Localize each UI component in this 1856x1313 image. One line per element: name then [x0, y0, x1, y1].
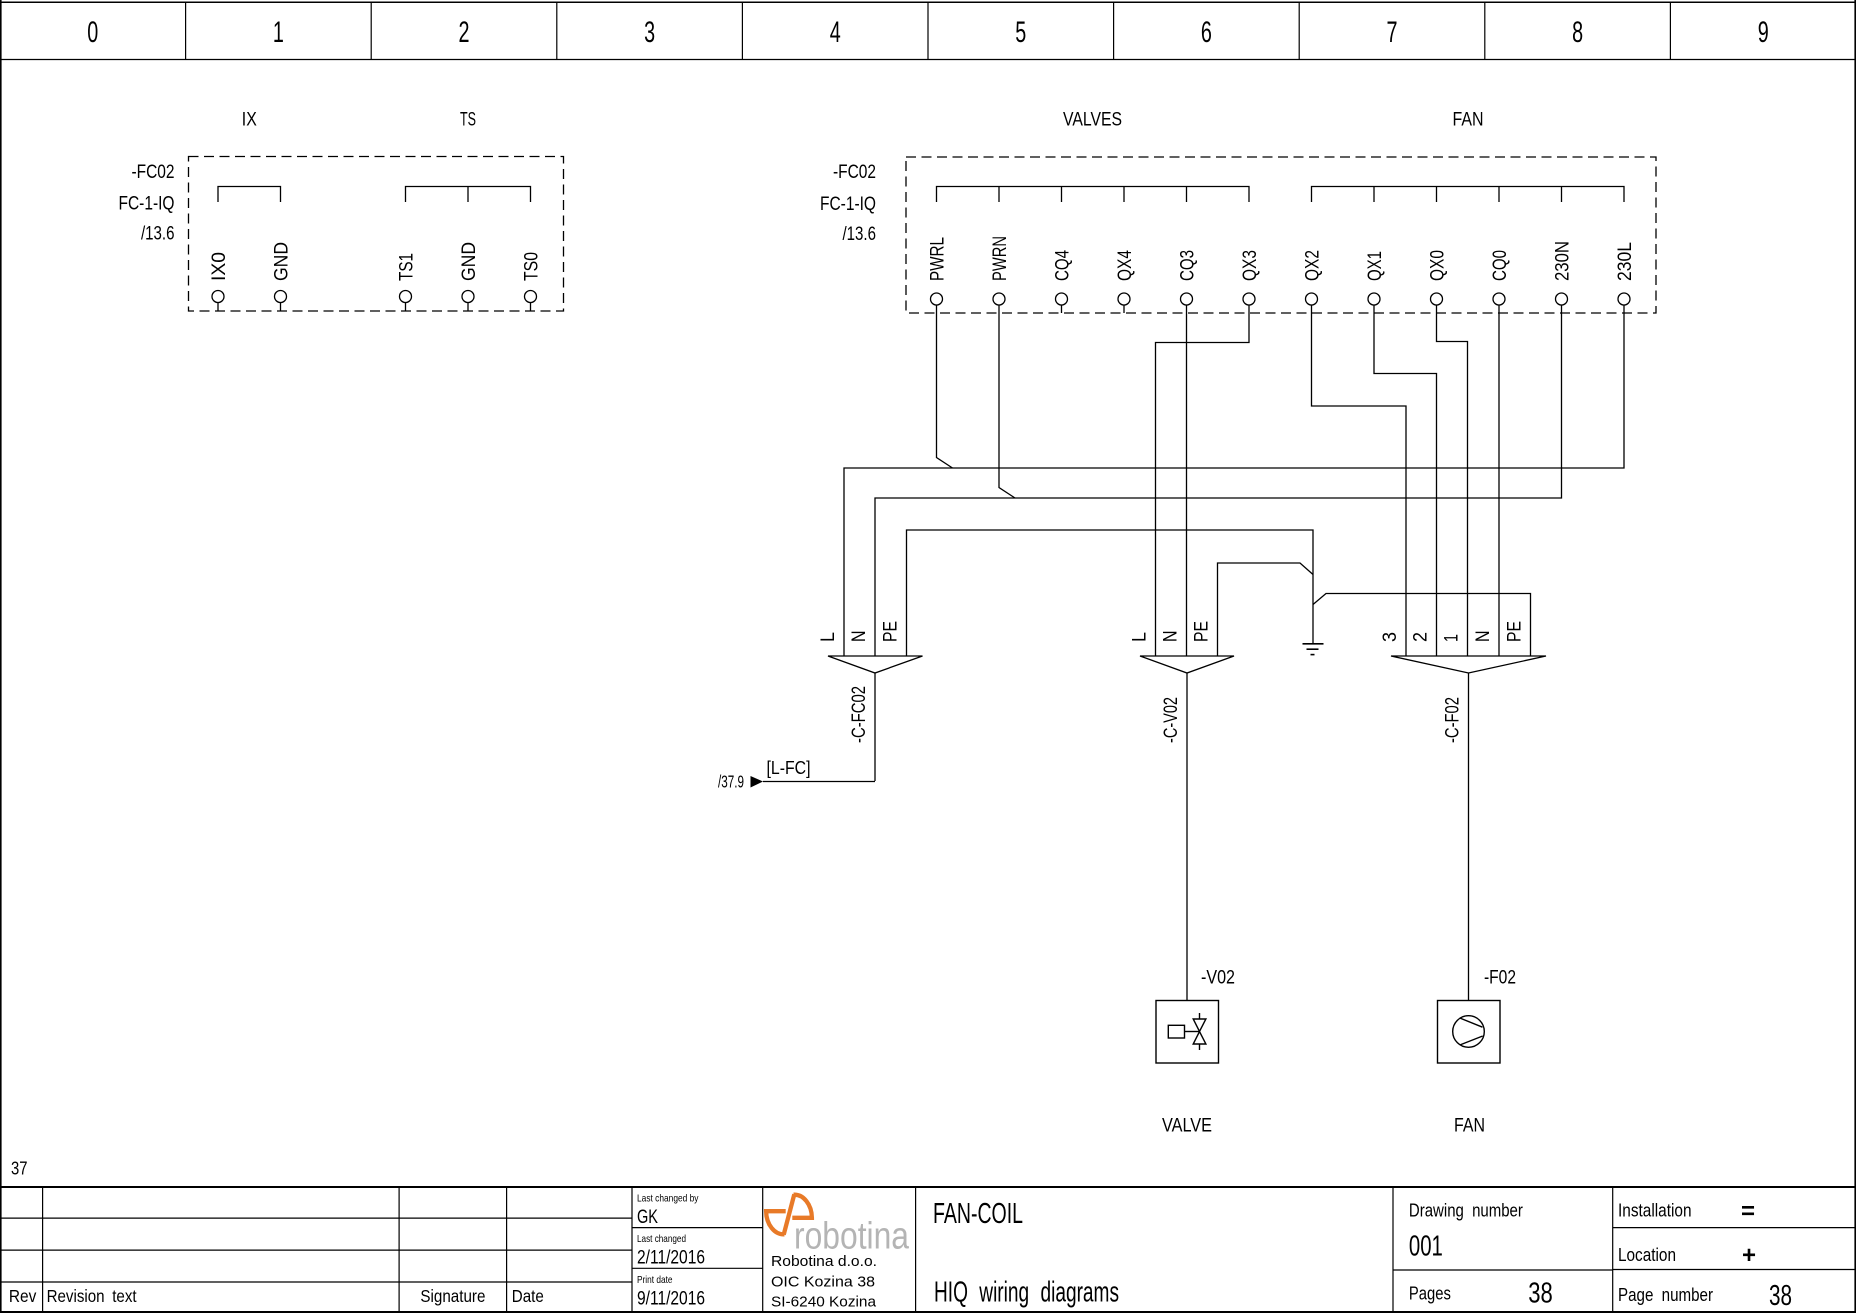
svg-text:8: 8: [1572, 16, 1583, 49]
svg-text:Location: Location: [1618, 1244, 1676, 1265]
svg-text:Date: Date: [512, 1286, 544, 1306]
svg-text:2/11/2016: 2/11/2016: [637, 1248, 705, 1269]
svg-text:L: L: [1130, 632, 1151, 642]
svg-text:Pages: Pages: [1409, 1283, 1451, 1304]
svg-text:HIQ wiring diagrams: HIQ wiring diagrams: [934, 1277, 1119, 1309]
svg-text:4: 4: [830, 16, 841, 49]
svg-text:Robotina d.o.o.: Robotina d.o.o.: [771, 1254, 877, 1270]
svg-text:1: 1: [1442, 634, 1463, 642]
svg-text:3: 3: [1380, 632, 1401, 642]
svg-text:Last changed: Last changed: [637, 1233, 686, 1245]
svg-text:FC-1-IQ: FC-1-IQ: [119, 194, 175, 215]
svg-text:-C-V02: -C-V02: [1161, 697, 1182, 743]
svg-text:2: 2: [459, 16, 470, 49]
svg-text:Rev: Rev: [9, 1286, 37, 1306]
svg-text:38: 38: [1769, 1280, 1792, 1312]
svg-text:CQ4: CQ4: [1053, 250, 1074, 281]
svg-text:-V02: -V02: [1201, 968, 1235, 989]
svg-text:GND: GND: [272, 242, 293, 281]
svg-text:0: 0: [87, 16, 98, 49]
svg-text:QX3: QX3: [1240, 250, 1261, 281]
svg-text:TS: TS: [460, 110, 476, 131]
svg-text:SI-6240 Kozina: SI-6240 Kozina: [771, 1294, 877, 1310]
svg-text:PWRN: PWRN: [990, 236, 1011, 281]
svg-text:9: 9: [1758, 16, 1769, 49]
svg-text:-F02: -F02: [1484, 968, 1516, 989]
svg-text:9/11/2016: 9/11/2016: [637, 1288, 705, 1309]
svg-text:QX0: QX0: [1428, 250, 1449, 281]
svg-text:6: 6: [1201, 16, 1212, 49]
svg-text:robotina: robotina: [794, 1215, 910, 1257]
svg-text:38: 38: [1528, 1278, 1553, 1310]
svg-text:N: N: [1473, 631, 1494, 643]
svg-text:001: 001: [1409, 1231, 1443, 1263]
svg-text:OIC Kozina 38: OIC Kozina 38: [771, 1274, 875, 1290]
svg-text:PE: PE: [1505, 621, 1526, 642]
svg-text:FAN-COIL: FAN-COIL: [933, 1198, 1023, 1230]
svg-text:PE: PE: [1192, 621, 1213, 642]
svg-text:PE: PE: [881, 621, 902, 642]
svg-text:FAN: FAN: [1454, 1116, 1485, 1137]
svg-text:VALVES: VALVES: [1063, 110, 1122, 131]
svg-text:Revision text: Revision text: [47, 1286, 137, 1306]
svg-text:Print date: Print date: [637, 1274, 673, 1286]
svg-text:TS0: TS0: [522, 252, 543, 281]
svg-text:/13.6: /13.6: [843, 224, 877, 245]
svg-text:QX4: QX4: [1115, 250, 1136, 281]
svg-text:CQ3: CQ3: [1178, 250, 1199, 281]
svg-text:-C-F02: -C-F02: [1443, 697, 1464, 743]
svg-text:QX2: QX2: [1303, 250, 1324, 281]
svg-text:/13.6: /13.6: [141, 224, 175, 245]
svg-text:Signature: Signature: [420, 1286, 485, 1306]
svg-text:N: N: [849, 631, 870, 643]
svg-text:IX0: IX0: [209, 252, 230, 281]
svg-text:7: 7: [1387, 16, 1398, 49]
svg-text:L: L: [818, 632, 839, 642]
svg-text:FC-1-IQ: FC-1-IQ: [820, 194, 876, 215]
svg-text:230L: 230L: [1615, 242, 1636, 281]
svg-text:5: 5: [1015, 16, 1026, 49]
svg-text:/37.9: /37.9: [718, 772, 744, 792]
svg-text:CQ0: CQ0: [1490, 250, 1511, 281]
svg-text:2: 2: [1411, 632, 1432, 642]
svg-text:=: =: [1741, 1198, 1755, 1225]
svg-text:Installation: Installation: [1618, 1200, 1692, 1221]
svg-text:1: 1: [273, 16, 284, 49]
svg-text:-FC02: -FC02: [132, 162, 175, 183]
svg-text:-C-FC02: -C-FC02: [849, 686, 870, 743]
svg-text:PWRL: PWRL: [928, 237, 949, 281]
svg-text:-FC02: -FC02: [833, 162, 876, 183]
svg-text:GK: GK: [637, 1207, 658, 1228]
svg-text:TS1: TS1: [397, 253, 418, 281]
svg-text:GND: GND: [459, 242, 480, 281]
svg-text:230N: 230N: [1553, 241, 1574, 281]
svg-text:Last changed by: Last changed by: [637, 1193, 699, 1205]
svg-text:3: 3: [644, 16, 655, 49]
svg-text:VALVE: VALVE: [1162, 1116, 1212, 1137]
svg-text:+: +: [1742, 1242, 1756, 1269]
svg-text:[L-FC]: [L-FC]: [767, 758, 811, 778]
svg-text:Drawing number: Drawing number: [1409, 1199, 1523, 1220]
svg-text:FAN: FAN: [1453, 110, 1484, 131]
svg-text:37: 37: [11, 1159, 28, 1179]
svg-text:Page number: Page number: [1618, 1284, 1713, 1305]
svg-text:IX: IX: [242, 110, 257, 131]
svg-text:N: N: [1161, 631, 1182, 643]
svg-text:QX1: QX1: [1365, 251, 1386, 281]
